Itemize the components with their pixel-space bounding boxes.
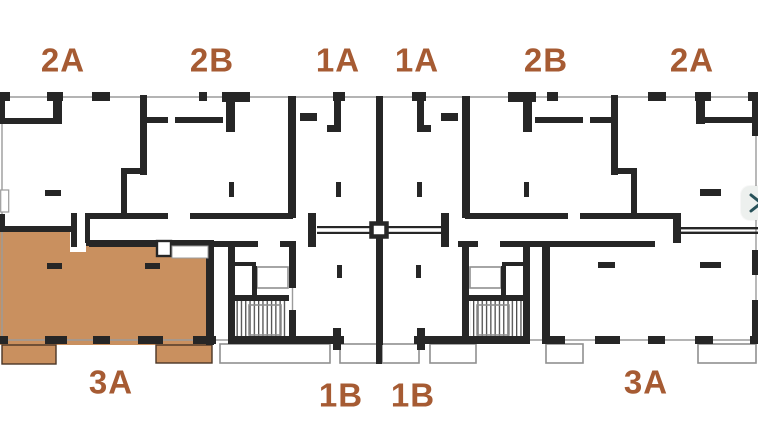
unit-label-1a-left[interactable]: 1A bbox=[316, 44, 360, 77]
unit-label-2a-left[interactable]: 2A bbox=[41, 44, 85, 77]
unit-label-1b-left[interactable]: 1B bbox=[319, 379, 363, 412]
unit-label-2a-right[interactable]: 2A bbox=[670, 44, 714, 77]
unit-label-2b-left[interactable]: 2B bbox=[190, 44, 234, 77]
unit-label-3a-right[interactable]: 3A bbox=[624, 366, 668, 399]
unit-label-1a-right[interactable]: 1A bbox=[395, 44, 439, 77]
corridor-center-shaft bbox=[372, 224, 387, 237]
elevator-right bbox=[470, 267, 501, 288]
unit-label-3a-left-highlighted[interactable]: 3A bbox=[89, 366, 133, 399]
next-floorplan-button[interactable] bbox=[741, 186, 758, 220]
floor-plan-viewer: 2A 2B 1A 1A 2B 2A 3A 1B 1B 3A bbox=[0, 0, 758, 421]
chevron-right-icon bbox=[741, 191, 758, 215]
unit-label-2b-right[interactable]: 2B bbox=[524, 44, 568, 77]
unit-label-1b-right[interactable]: 1B bbox=[391, 379, 435, 412]
floor-plan-drawing bbox=[0, 0, 758, 421]
balconies bbox=[220, 344, 756, 363]
stairwell-left bbox=[236, 267, 288, 339]
elevator-left bbox=[257, 267, 288, 288]
stairwell-right bbox=[470, 267, 522, 339]
